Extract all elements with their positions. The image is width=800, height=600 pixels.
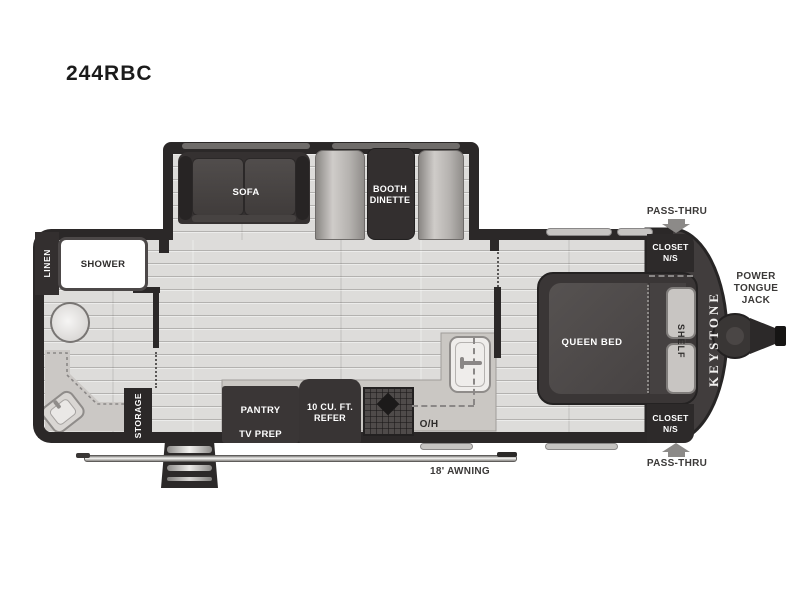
closet-bottom: CLOSET N/S <box>647 404 694 443</box>
window-top-1 <box>546 228 612 236</box>
shelf-label: SHELF <box>676 324 686 359</box>
floorplan-canvas: 244RBC <box>0 0 800 600</box>
shelf-label-wrap: SHELF <box>666 303 696 379</box>
slideout-edge-trim-left <box>182 143 310 149</box>
bath-door-line <box>155 352 157 388</box>
pass-thru-bottom-label: PASS-THRU <box>636 458 718 471</box>
sofa-label: SOFA <box>196 187 296 199</box>
arrow-down-icon <box>662 224 690 233</box>
overhead-dash-vertical <box>473 338 475 405</box>
awning-end-left <box>76 453 90 458</box>
bath-wall-vertical <box>153 287 159 348</box>
sofa-armrest-left <box>179 156 192 220</box>
slide-left-wall-stub <box>159 238 169 253</box>
faucet-icon <box>461 361 482 365</box>
page-title: 244RBC <box>66 61 176 87</box>
entry-steps <box>161 441 218 488</box>
overhead-label: O/H <box>413 419 445 432</box>
pass-thru-bottom-arrow <box>668 452 685 457</box>
power-tongue-jack-label: POWER TONGUE JACK <box>723 271 789 306</box>
closet-top-dash <box>649 275 693 277</box>
dinette-label: BOOTH DINETTE <box>359 184 421 207</box>
window-bottom-1 <box>420 443 473 450</box>
pass-thru-top-label: PASS-THRU <box>636 206 718 219</box>
bedroom-wall-stub <box>490 238 499 251</box>
awning-end-right <box>497 452 517 457</box>
overhead-dash-horizontal <box>412 405 474 407</box>
window-bottom-2 <box>545 443 618 450</box>
queen-bed-label: QUEEN BED <box>542 337 642 349</box>
sofa-armrest-right <box>296 156 309 220</box>
bedroom-wall-vertical <box>494 287 501 358</box>
kitchen-sink <box>449 336 491 393</box>
bedroom-door-line <box>497 252 499 287</box>
awning-bar <box>84 455 517 462</box>
storage-label: STORAGE <box>133 393 143 438</box>
dinette-bench-right <box>418 150 464 240</box>
dinette-bench-left <box>315 150 365 240</box>
storage-compartment: STORAGE <box>124 388 152 443</box>
refer-label: 10 CU. FT. REFER <box>301 402 359 425</box>
linen-label: LINEN <box>42 249 52 278</box>
tv-prep-label: TV PREP <box>222 429 299 441</box>
brand-label: KEYSTONE <box>706 291 722 387</box>
bed-fold-line <box>647 285 649 393</box>
pantry-label: PANTRY <box>222 405 299 417</box>
shower-label: SHOWER <box>58 259 148 271</box>
closet-top-label: CLOSET N/S <box>650 242 692 263</box>
closet-bottom-label: CLOSET N/S <box>650 413 692 434</box>
sofa-seat-edge <box>192 215 296 222</box>
arrow-up-icon <box>662 443 690 452</box>
awning-label: 18' AWNING <box>418 466 502 479</box>
faucet-icon <box>460 357 464 369</box>
linen-closet: LINEN <box>35 232 59 295</box>
closet-top: CLOSET N/S <box>647 234 694 272</box>
